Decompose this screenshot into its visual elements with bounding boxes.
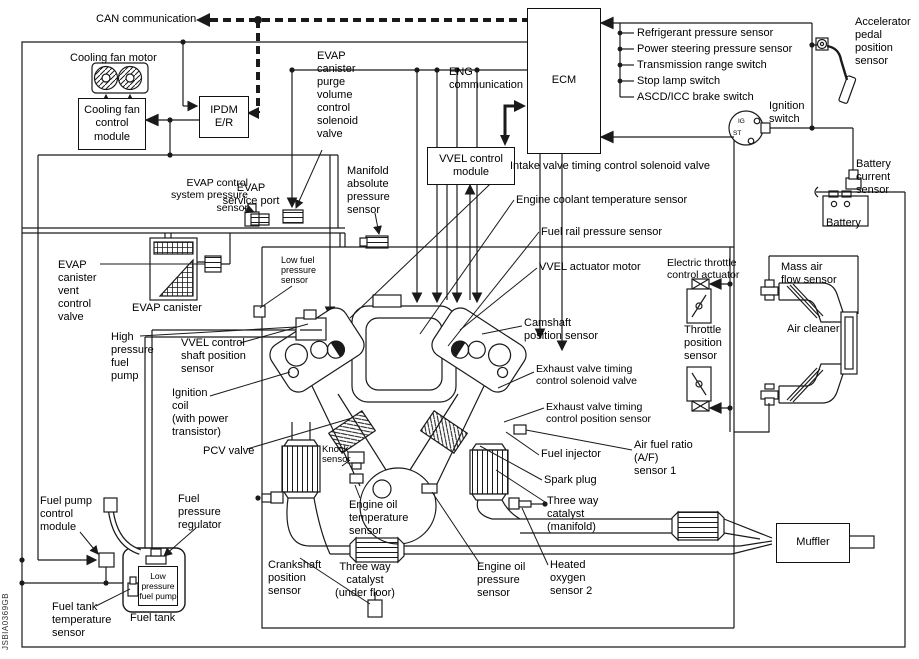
vvel-control-module-box: VVEL control module bbox=[427, 147, 515, 185]
air-fuel-ratio-sensor-label: Air fuel ratio (A/F) sensor 1 bbox=[634, 439, 693, 478]
oil-pressure-sensor-icon bbox=[422, 484, 437, 493]
exhaust-valve-timing-position-label: Exhaust valve timing control position se… bbox=[546, 401, 651, 426]
ecm-box: ECM bbox=[527, 8, 601, 154]
cooling-fan-motor-icon bbox=[92, 63, 148, 93]
ignition-ig-label: IG bbox=[738, 119, 745, 126]
fuel-pump-control-module-icon bbox=[99, 553, 114, 567]
mass-air-flow-sensor-label: Mass air flow sensor bbox=[781, 261, 837, 287]
muffler-box: Muffler bbox=[776, 523, 850, 563]
intake-valve-timing-label: Intake valve timing control solenoid val… bbox=[510, 160, 710, 173]
evap-canister-label: EVAP canister bbox=[132, 302, 202, 315]
eng-arrow-right-icon bbox=[514, 100, 526, 112]
fuel-pressure-regulator-label: Fuel pressure regulator bbox=[178, 493, 221, 532]
eng-communication-label: ENG communication bbox=[449, 66, 523, 92]
fuel-injector-label: Fuel injector bbox=[541, 448, 601, 461]
low-pressure-fuel-pump-label: Low pressure fuel pump bbox=[139, 571, 176, 602]
mass-air-flow-sensor-icon bbox=[761, 280, 778, 405]
second-underfloor-catalyst-icon bbox=[672, 512, 724, 540]
tail-pipe-icon bbox=[848, 536, 874, 548]
fuel-rail-pressure-label: Fuel rail pressure sensor bbox=[541, 226, 662, 239]
evap-canister-vent-valve-label: EVAP canister vent control valve bbox=[58, 259, 97, 324]
vvel-actuator-motor-label: VVEL actuator motor bbox=[539, 261, 641, 274]
spark-plug-label: Spark plug bbox=[544, 474, 597, 487]
ignition-coil-label: Ignition coil (with power transistor) bbox=[172, 387, 228, 439]
map-sensor-icon bbox=[360, 236, 388, 248]
oil-temp-sensor-icon bbox=[350, 474, 363, 483]
vvel-shaft-position-sensor-label: VVEL control shaft position sensor bbox=[181, 337, 246, 376]
can-arrow-icon bbox=[196, 13, 210, 27]
air-cleaner-icon bbox=[779, 283, 857, 403]
fuel-tank-label: Fuel tank bbox=[130, 612, 175, 625]
ecm-input-stop-lamp: Stop lamp switch bbox=[637, 75, 720, 88]
twc-manifold-label: Three way catalyst (manifold) bbox=[547, 495, 598, 534]
cooling-fan-control-module-label: Cooling fan control module bbox=[84, 104, 140, 144]
fuel-tank-temp-sensor-label: Fuel tank temperature sensor bbox=[52, 601, 111, 640]
ecm-input-transmission-range: Transmission range switch bbox=[637, 59, 767, 72]
muffler-label: Muffler bbox=[796, 536, 829, 549]
figure-code: JSBIA0369GB bbox=[1, 566, 10, 650]
evap-purge-valve-label: EVAP canister purge volume control solen… bbox=[317, 50, 358, 141]
manifold-absolute-pressure-label: Manifold absolute pressure sensor bbox=[347, 165, 390, 217]
ignition-st-label: ST bbox=[733, 131, 741, 138]
engine-oil-temp-sensor-label: Engine oil temperature sensor bbox=[349, 499, 408, 538]
underfloor-catalyst-icon bbox=[350, 538, 404, 562]
accelerator-pedal-icon bbox=[816, 38, 856, 104]
exhaust-timing-position-sensor-icon bbox=[514, 425, 526, 434]
eng-arrow-down-icon bbox=[500, 135, 510, 146]
cooling-fan-control-module-box: Cooling fan control module bbox=[78, 98, 146, 150]
ecm-input-ascd-icc: ASCD/ICC brake switch bbox=[637, 91, 754, 104]
fuel-tank-temp-sensor-icon bbox=[128, 577, 138, 596]
battery-label: Battery bbox=[826, 217, 861, 230]
exhaust-valve-timing-solenoid-label: Exhaust valve timing control solenoid va… bbox=[536, 363, 637, 388]
right-manifold-catalyst-icon bbox=[470, 444, 508, 500]
low-pressure-fuel-pump-box: Low pressure fuel pump bbox=[138, 566, 178, 606]
air-cleaner-label: Air cleaner bbox=[787, 323, 840, 336]
engine-oil-pressure-sensor-label: Engine oil pressure sensor bbox=[477, 561, 525, 600]
throttle-position-sensor-label: Throttle position sensor bbox=[684, 324, 722, 363]
accelerator-pedal-label: Accelerator pedal position sensor bbox=[855, 16, 911, 68]
evap-purge-valve-icon bbox=[283, 210, 303, 223]
evap-canister-vent-valve-icon bbox=[205, 256, 221, 272]
eng-bus bbox=[500, 100, 526, 146]
crankshaft-position-sensor-label: Crankshaft position sensor bbox=[268, 559, 321, 598]
high-pressure-fuel-pump-label: High pressure fuel pump bbox=[111, 331, 154, 383]
evap-pressure-sensor-icon bbox=[251, 214, 269, 225]
ecm-label: ECM bbox=[552, 74, 576, 87]
fuel-pump-control-module-label: Fuel pump control module bbox=[40, 495, 92, 534]
pcv-valve-label: PCV valve bbox=[203, 445, 254, 458]
ipdm-label: IPDM E/R bbox=[210, 104, 238, 130]
twc-under-floor-label: Three way catalyst (under floor) bbox=[316, 561, 414, 600]
ipdm-box: IPDM E/R bbox=[199, 96, 249, 138]
engine-control-system-diagram: ECM IPDM E/R VVEL control module Cooling… bbox=[0, 0, 919, 659]
evap-service-port-label: EVAP service port bbox=[206, 182, 296, 208]
vvel-control-module-label: VVEL control module bbox=[439, 153, 503, 179]
evap-canister-icon bbox=[150, 233, 197, 300]
ignition-switch-icon bbox=[729, 111, 770, 145]
low-fuel-pressure-sensor-icon bbox=[254, 306, 265, 317]
low-fuel-pressure-sensor-label: Low fuel pressure sensor bbox=[281, 256, 316, 286]
camshaft-position-sensor-label: Camshaft position sensor bbox=[524, 317, 598, 343]
electric-throttle-actuator-label: Electric throttle control actuator bbox=[667, 257, 739, 282]
ecm-input-power-steering: Power steering pressure sensor bbox=[637, 43, 792, 56]
heated-oxygen-sensor-2-label: Heated oxygen sensor 2 bbox=[550, 559, 592, 598]
knock-sensor-label: Knock sensor bbox=[322, 445, 351, 466]
cooling-fan-motor-label: Cooling fan motor bbox=[70, 52, 157, 65]
can-communication-label: CAN communication bbox=[96, 13, 196, 26]
ecm-input-refrigerant: Refrigerant pressure sensor bbox=[637, 27, 773, 40]
engine-coolant-temp-label: Engine coolant temperature sensor bbox=[516, 194, 687, 207]
filler-tube-icon bbox=[104, 498, 140, 552]
battery-current-sensor-label: Battery current sensor bbox=[856, 158, 891, 197]
ignition-switch-label: Ignition switch bbox=[769, 100, 804, 126]
